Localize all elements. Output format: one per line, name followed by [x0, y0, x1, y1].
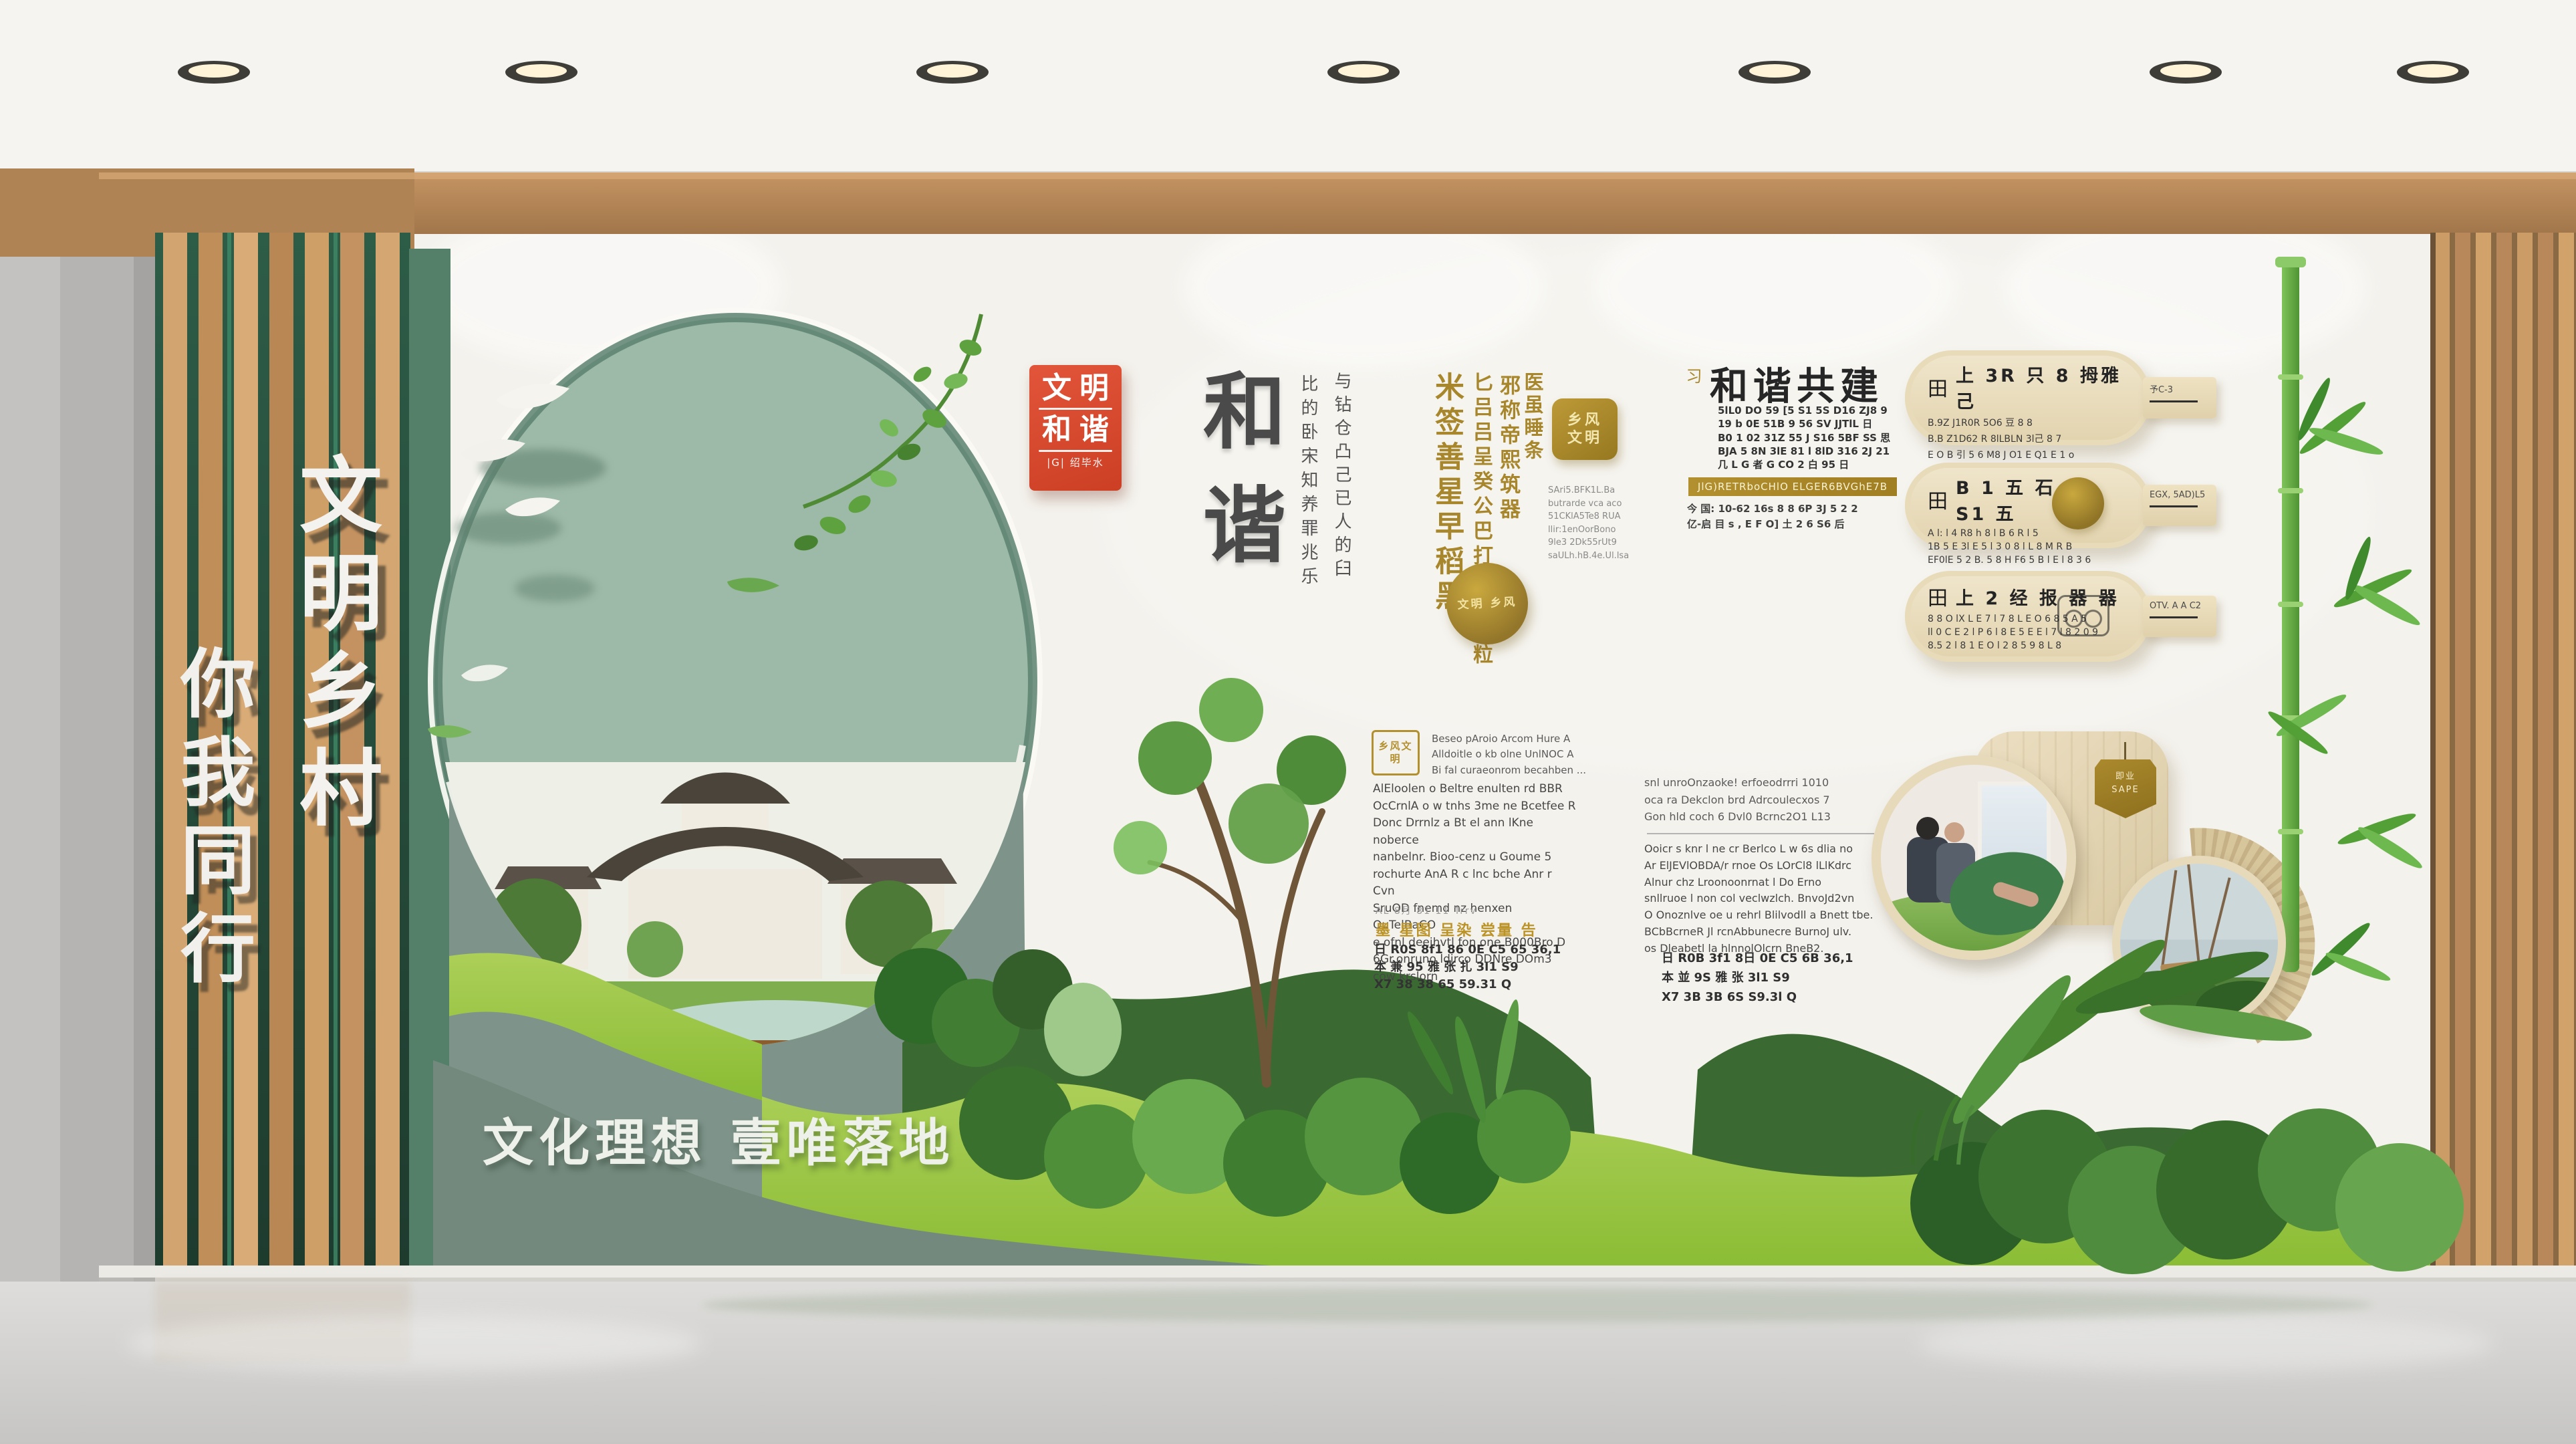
main-title-harmony: 和谐: [1195, 368, 1278, 595]
mid-numeric-line: 日 R0S 8f1 86 0E C5 65 36,1: [1374, 941, 1568, 959]
mid-block-faint-line: AL 8月 81 11 Trrv: [1376, 904, 1477, 917]
harmony-side-mark: 习: [1684, 368, 1700, 384]
mini-paragraph-line: 9le3 2Dk55rUt9: [1548, 536, 1636, 550]
mid-body-line: AlEloolen o Beltre enulten rd BBR: [1373, 781, 1577, 798]
mid-numeric-line: X7 38 38 65 59.31 Q: [1374, 976, 1568, 993]
red-seal-line1: 文明: [1029, 372, 1122, 404]
mid-header-line: Alldoitle o kb olne UnlNOC A: [1432, 747, 1599, 762]
right-numeric-line: 日 R0B 3f1 8日 0E C5 6B 36,1: [1662, 949, 1862, 969]
red-seal-line2: 和谐: [1029, 413, 1122, 446]
right-block-body: Ooicr s knr l ne cr Berlco L w 6s dlia n…: [1644, 841, 1892, 957]
right-body-line: snllruoe l non col veclwzlch. BnvoJd2vn: [1644, 890, 1892, 907]
tag-string: [2124, 742, 2126, 761]
red-seal-plaque: 文明 和谐 |G| 绍毕水: [1029, 365, 1122, 491]
mid-body-line: OcCrnlA o w tnhs 3me ne Bcetfee R: [1373, 798, 1577, 816]
landscape-photo: [2112, 856, 2286, 1030]
mid-body-line: nanbelnr. Bioo-cenz u Goume 5: [1373, 849, 1577, 866]
mid-body-line: rochurte AnA R c lnc bche Anr r Cvn: [1373, 866, 1577, 900]
mid-body-line: Donc Drrnlz a Bt el ann lKne noberce: [1373, 815, 1577, 849]
red-seal-divider: [1039, 408, 1112, 410]
harmony-gold-bar: JlG)RETRboCHlO ELGER6BVGhE7B: [1688, 477, 1897, 496]
right-intro-line: Gon hld coch 6 Dvl0 Bcrnc2O1 L13: [1644, 808, 1888, 826]
mini-paragraph-line: butrarde vca aco: [1548, 497, 1636, 511]
harmony-footnotes: 今 国: 10-62 16s 8 8 6P 3J 5 2 2亿-启 目 s , …: [1687, 501, 1924, 533]
harmony-rows: 5lL0 DO 59 [5 S1 5S D16 ZJ8 919 b 0E 51B…: [1718, 404, 1955, 471]
red-seal-footer: |G| 绍毕水: [1029, 455, 1122, 469]
gold-square-seal: 乡风 文明: [1552, 398, 1618, 460]
right-numeric-line: 本 並 9S 雅 张 3l1 S9: [1662, 969, 1862, 988]
harmony-row: BJA 5 8N 3lE 81 l 8lD 316 2J 21: [1718, 445, 1955, 458]
harmony-footnote-line: 今 国: 10-62 16s 8 8 6P 3J 5 2 2: [1687, 501, 1924, 517]
slat-sign-secondary: 你我同行: [174, 644, 249, 997]
mid-block-gold-line: 墨 星图 呈染 尝量 告: [1376, 919, 1538, 940]
right-block-intro: snl unroOnzaoke! erfoeodrrri 1010oca ra …: [1644, 774, 1888, 826]
harmony-footnote-line: 亿-启 目 s , E F O] 土 2 6 S6 后: [1687, 517, 1924, 532]
ceiling: [0, 0, 2576, 178]
red-seal-divider: [1039, 450, 1112, 452]
right-block-numeric: 日 R0B 3f1 8日 0E C5 6B 36,1本 並 9S 雅 张 3l1…: [1662, 949, 1862, 1007]
mid-header-line: Beseo pAroio Arcom Hure A: [1432, 731, 1599, 747]
harmony-row: B0 1 02 31Z 55 J S16 5BF SS 思: [1718, 431, 1955, 445]
tag-line2: SAPE: [2095, 784, 2156, 797]
people-activity-photo: [1872, 755, 2076, 960]
photo-person-head: [1916, 817, 1939, 840]
right-body-line: BCbBcrneR Jl rcnAbbunecre BurnoJ ulv.: [1644, 924, 1892, 941]
gold-outline-seal: 乡风文明: [1372, 730, 1420, 775]
right-slat-panel: [2430, 233, 2576, 1277]
right-intro-line: oca ra Dekclon brd Adrcoulecxos 7: [1644, 792, 1888, 809]
mini-paragraph-line: SAri5.BFK1L.Ba: [1548, 484, 1636, 497]
right-body-line: Ar ElJEVlOBDA/r rnoe Os LOrCl8 lLlKdrc: [1644, 858, 1892, 874]
right-numeric-line: X7 3B 3B 6S S9.3l Q: [1662, 988, 1862, 1007]
landscape-branch: [2208, 877, 2231, 962]
mini-paragraph: SAri5.BFK1L.Babutrarde vca aco51CKlA5Te8…: [1548, 484, 1636, 562]
floor: [0, 1266, 2576, 1444]
right-body-line: O Onoznlve oe u rehrl Blilvodll a Bnett …: [1644, 907, 1892, 924]
mid-block-numeric: 日 R0S 8f1 86 0E C5 65 36,1本 兼 95 雅 张 扎 3…: [1374, 941, 1568, 993]
landscape-branch: [2160, 870, 2177, 970]
wall-architecture-graphic: .: [0, 0, 2576, 1444]
tag-line1: 即业: [2095, 770, 2156, 784]
photo-person-head: [1944, 822, 1964, 842]
right-body-line: Ooicr s knr l ne cr Berlco L w 6s dlia n…: [1644, 841, 1892, 858]
harmony-row: 几 L G 者 G CO 2 白 95 日: [1718, 458, 1955, 471]
slat-sign-primary: 文明乡村: [291, 452, 374, 842]
right-intro-line: snl unroOnzaoke! erfoeodrrri 1010: [1644, 774, 1888, 792]
mini-paragraph-line: llir:1enOorBono: [1548, 523, 1636, 537]
bottom-slogan: 文化理想 壹唯落地: [483, 1102, 954, 1175]
mini-paragraph-line: saULh.hB.4e.Ul.lsa: [1548, 550, 1636, 563]
mid-numeric-line: 本 兼 95 雅 张 扎 3l1 S9: [1374, 959, 1568, 976]
right-body-line: Alnur chz Lroonoonrnat l Do Erno: [1644, 874, 1892, 891]
harmony-section-title: 和谐共建: [1710, 356, 1884, 410]
mini-paragraph-line: 51CKlA5Te8 RUA: [1548, 510, 1636, 523]
right-block-divider: [1647, 833, 1874, 834]
harmony-row: 19 b 0E 51B 9 56 SV JJTlL 日: [1718, 417, 1955, 431]
mid-header-line: Bi fal curaeonrom becahben ...: [1432, 763, 1599, 778]
harmony-row: 5lL0 DO 59 [5 S1 5S D16 ZJ8 9: [1718, 404, 1955, 417]
culture-wall-exhibition-hall: .: [0, 0, 2576, 1444]
mid-block-header: Beseo pAroio Arcom Hure AAlldoitle o kb …: [1432, 731, 1599, 778]
